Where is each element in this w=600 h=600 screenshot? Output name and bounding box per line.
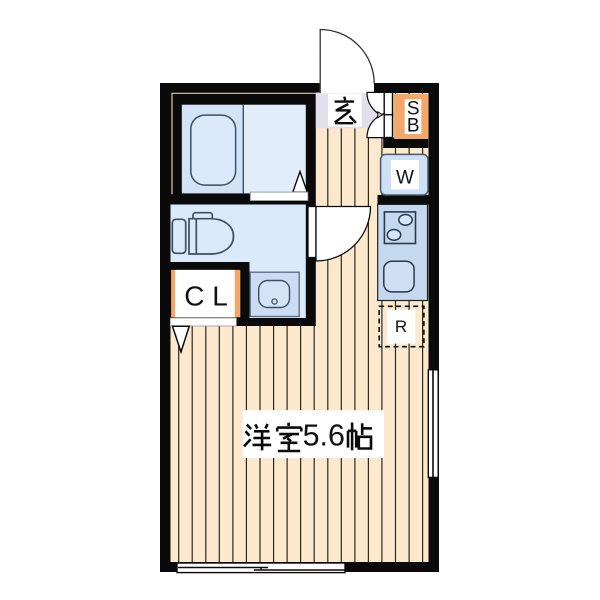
svg-text:R: R — [395, 317, 407, 336]
svg-text:C L: C L — [184, 281, 228, 312]
svg-text:W: W — [396, 168, 414, 189]
svg-text:5.6: 5.6 — [303, 419, 345, 453]
svg-text:B: B — [407, 116, 420, 137]
